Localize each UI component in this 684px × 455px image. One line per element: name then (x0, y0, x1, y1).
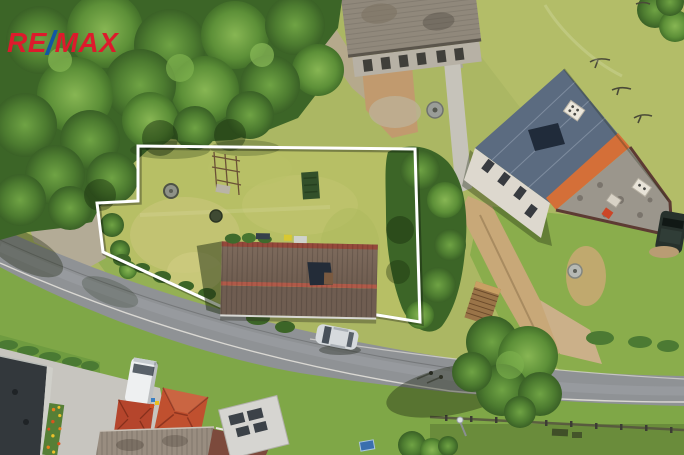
logo-re: RE (7, 27, 47, 58)
large-bottom-roof (96, 427, 218, 455)
yellow-item (284, 235, 292, 241)
dark-circle-feature (210, 210, 222, 222)
fire-pit (164, 184, 178, 198)
blue-pool (359, 440, 374, 451)
dirt-patch-right (649, 246, 679, 258)
fence-shadow2 (572, 432, 582, 438)
roof-texture (220, 241, 377, 317)
yard-well (427, 102, 443, 118)
scene (0, 0, 684, 455)
fence-shadow1 (552, 429, 568, 437)
white-table (294, 236, 307, 243)
dark-garden-bed (301, 171, 320, 199)
aerial-photo: RE/MAX (0, 0, 684, 455)
well-cover (568, 264, 582, 278)
remax-watermark-logo: RE/MAX (7, 26, 118, 59)
plot-farmhouse (195, 232, 378, 324)
roof-hole-patch (324, 273, 333, 285)
logo-max: MAX (55, 27, 119, 58)
